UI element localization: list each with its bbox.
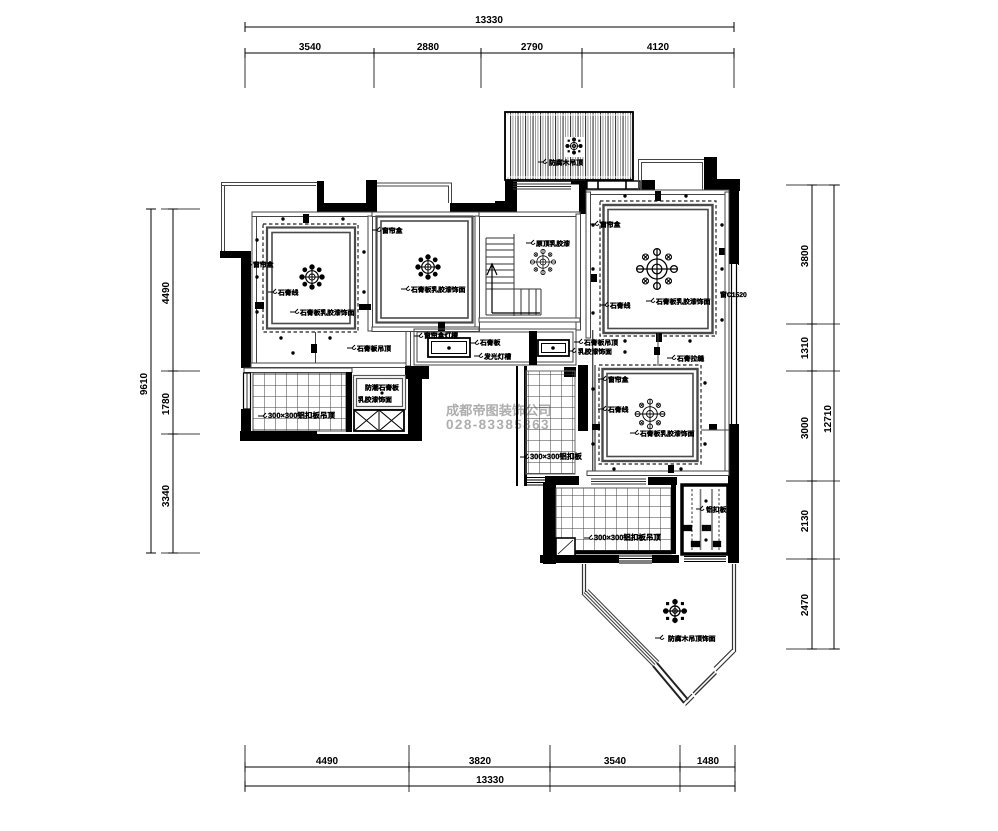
svg-text:300×300铝扣板吊顶: 300×300铝扣板吊顶 — [268, 411, 335, 420]
svg-text:防潮石膏板: 防潮石膏板 — [365, 384, 399, 392]
svg-text:石膏线: 石膏线 — [277, 289, 299, 297]
svg-text:3540: 3540 — [604, 756, 627, 767]
svg-text:窗帘盒: 窗帘盒 — [382, 227, 403, 235]
svg-text:防腐木吊顶饰面: 防腐木吊顶饰面 — [668, 635, 716, 643]
svg-text:乳胶漆饰面: 乳胶漆饰面 — [578, 348, 612, 356]
svg-text:发光灯槽: 发光灯槽 — [483, 353, 511, 361]
svg-text:13330: 13330 — [476, 775, 504, 786]
svg-text:铝扣板: 铝扣板 — [706, 506, 727, 514]
svg-text:2880: 2880 — [417, 42, 440, 53]
svg-text:2470: 2470 — [800, 593, 811, 616]
svg-text:12710: 12710 — [823, 405, 834, 433]
svg-text:乳胶漆饰面: 乳胶漆饰面 — [358, 396, 392, 404]
svg-text:13330: 13330 — [475, 15, 503, 26]
svg-text:石膏板吊顶: 石膏板吊顶 — [583, 339, 618, 347]
svg-text:9610: 9610 — [139, 372, 150, 395]
svg-text:石膏线: 石膏线 — [609, 302, 631, 310]
svg-text:1310: 1310 — [800, 336, 811, 359]
svg-text:3800: 3800 — [800, 244, 811, 267]
svg-text:2790: 2790 — [521, 42, 544, 53]
svg-text:防腐木吊顶: 防腐木吊顶 — [549, 159, 583, 167]
svg-text:3820: 3820 — [469, 756, 492, 767]
svg-text:窗C1520: 窗C1520 — [720, 291, 747, 299]
svg-text:300×300铝扣板: 300×300铝扣板 — [530, 452, 582, 461]
svg-text:石膏板乳胶漆饰面: 石膏板乳胶漆饰面 — [655, 298, 711, 306]
svg-text:1480: 1480 — [697, 756, 720, 767]
svg-text:4490: 4490 — [161, 281, 172, 304]
svg-text:原顶乳胶漆: 原顶乳胶漆 — [536, 240, 570, 248]
svg-text:300×300铝扣板吊顶: 300×300铝扣板吊顶 — [594, 533, 661, 542]
svg-text:石膏线: 石膏线 — [607, 406, 629, 414]
svg-text:3540: 3540 — [299, 42, 322, 53]
svg-text:1780: 1780 — [161, 392, 172, 415]
svg-text:窗帘盒: 窗帘盒 — [608, 376, 629, 384]
svg-text:窗帘盒灯槽: 窗帘盒灯槽 — [424, 332, 458, 340]
svg-text:石膏板乳胶漆饰面: 石膏板乳胶漆饰面 — [410, 286, 466, 294]
svg-text:石膏板吊顶: 石膏板吊顶 — [356, 345, 391, 353]
svg-text:石膏板: 石膏板 — [479, 339, 501, 347]
svg-text:石膏拉缝: 石膏拉缝 — [676, 355, 704, 363]
svg-text:石膏板乳胶漆饰面: 石膏板乳胶漆饰面 — [639, 430, 695, 438]
svg-text:2130: 2130 — [800, 509, 811, 532]
svg-text:3000: 3000 — [800, 416, 811, 439]
svg-text:4120: 4120 — [647, 42, 670, 53]
svg-text:4490: 4490 — [316, 756, 339, 767]
svg-text:窗帘盒: 窗帘盒 — [600, 221, 621, 229]
svg-text:石膏板乳胶漆饰面: 石膏板乳胶漆饰面 — [299, 309, 355, 317]
svg-text:3340: 3340 — [161, 484, 172, 507]
svg-text:窗帘盒: 窗帘盒 — [253, 261, 274, 269]
